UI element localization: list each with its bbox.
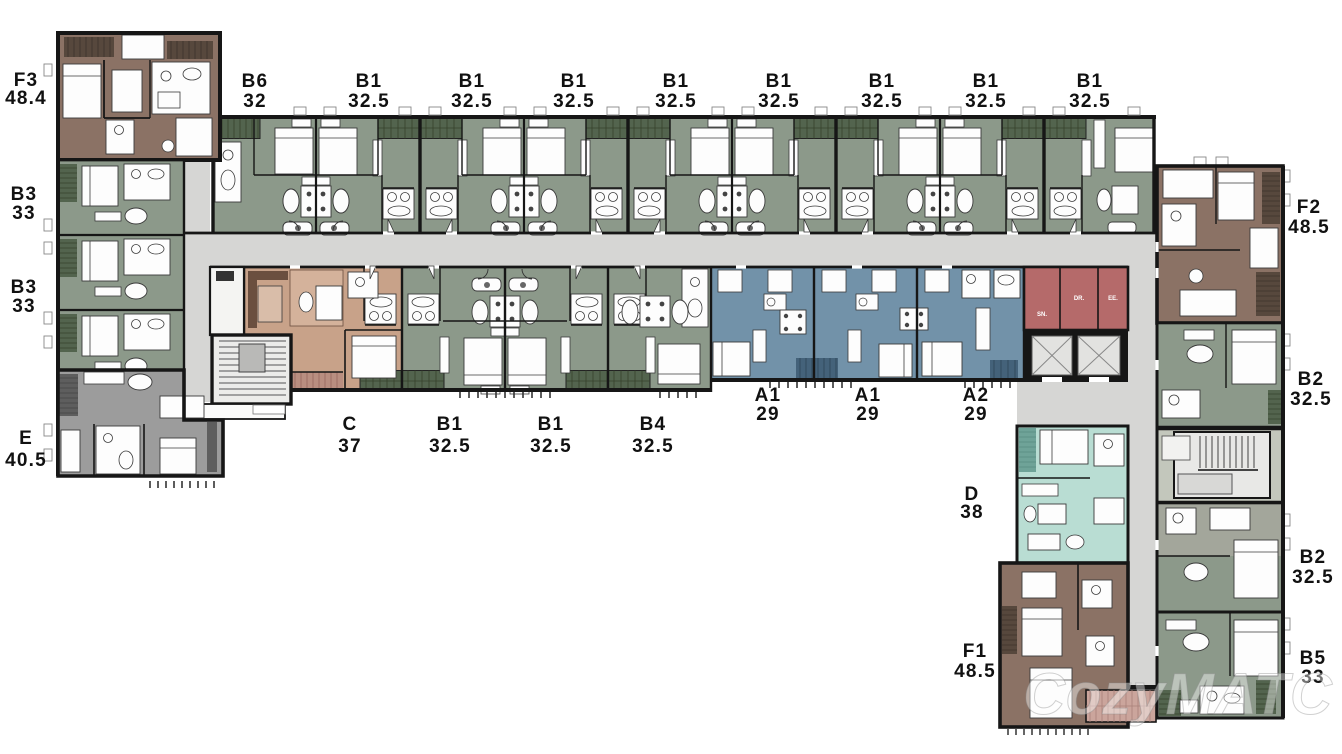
svg-text:F1: F1 xyxy=(963,641,988,662)
svg-text:32.5: 32.5 xyxy=(632,436,674,457)
svg-text:B6: B6 xyxy=(242,71,269,92)
svg-text:32.5: 32.5 xyxy=(965,91,1007,112)
svg-text:32: 32 xyxy=(243,91,267,112)
svg-text:40.5: 40.5 xyxy=(5,450,47,471)
svg-text:32.5: 32.5 xyxy=(758,91,800,112)
svg-text:B2: B2 xyxy=(1298,369,1325,390)
svg-text:B1: B1 xyxy=(459,71,486,92)
svg-text:A1: A1 xyxy=(755,385,782,406)
svg-text:B1: B1 xyxy=(538,414,565,435)
svg-text:B2: B2 xyxy=(1300,547,1327,568)
svg-text:SN.: SN. xyxy=(1037,312,1047,318)
svg-text:33: 33 xyxy=(12,296,36,317)
svg-text:32.5: 32.5 xyxy=(861,91,903,112)
svg-text:29: 29 xyxy=(756,404,780,425)
svg-text:48.5: 48.5 xyxy=(954,661,996,682)
svg-text:B1: B1 xyxy=(869,71,896,92)
svg-text:B1: B1 xyxy=(766,71,793,92)
svg-text:37: 37 xyxy=(338,436,362,457)
svg-text:CozyMATC: CozyMATC xyxy=(1023,662,1333,727)
svg-text:48.5: 48.5 xyxy=(1288,217,1330,238)
svg-text:A2: A2 xyxy=(963,385,990,406)
svg-text:E: E xyxy=(19,428,33,449)
svg-text:B3: B3 xyxy=(11,277,38,298)
svg-text:B4: B4 xyxy=(640,414,667,435)
svg-text:B1: B1 xyxy=(663,71,690,92)
svg-text:33: 33 xyxy=(12,203,36,224)
svg-text:38: 38 xyxy=(960,502,984,523)
svg-text:32.5: 32.5 xyxy=(530,436,572,457)
svg-text:32.5: 32.5 xyxy=(1292,567,1334,588)
svg-text:B1: B1 xyxy=(1077,71,1104,92)
svg-text:DR.: DR. xyxy=(1074,296,1085,302)
svg-text:29: 29 xyxy=(964,404,988,425)
svg-text:F2: F2 xyxy=(1297,197,1322,218)
svg-text:B1: B1 xyxy=(356,71,383,92)
svg-text:32.5: 32.5 xyxy=(655,91,697,112)
svg-text:32.5: 32.5 xyxy=(1069,91,1111,112)
svg-text:B3: B3 xyxy=(11,184,38,205)
svg-text:32.5: 32.5 xyxy=(1290,389,1332,410)
svg-text:48.4: 48.4 xyxy=(5,88,47,109)
svg-text:32.5: 32.5 xyxy=(451,91,493,112)
svg-text:32.5: 32.5 xyxy=(348,91,390,112)
svg-text:EE.: EE. xyxy=(1108,296,1118,302)
svg-text:B1: B1 xyxy=(561,71,588,92)
svg-text:32.5: 32.5 xyxy=(429,436,471,457)
svg-text:32.5: 32.5 xyxy=(553,91,595,112)
svg-text:B1: B1 xyxy=(437,414,464,435)
svg-text:C: C xyxy=(343,414,358,435)
svg-text:A1: A1 xyxy=(855,385,882,406)
svg-text:B1: B1 xyxy=(973,71,1000,92)
svg-text:29: 29 xyxy=(856,404,880,425)
